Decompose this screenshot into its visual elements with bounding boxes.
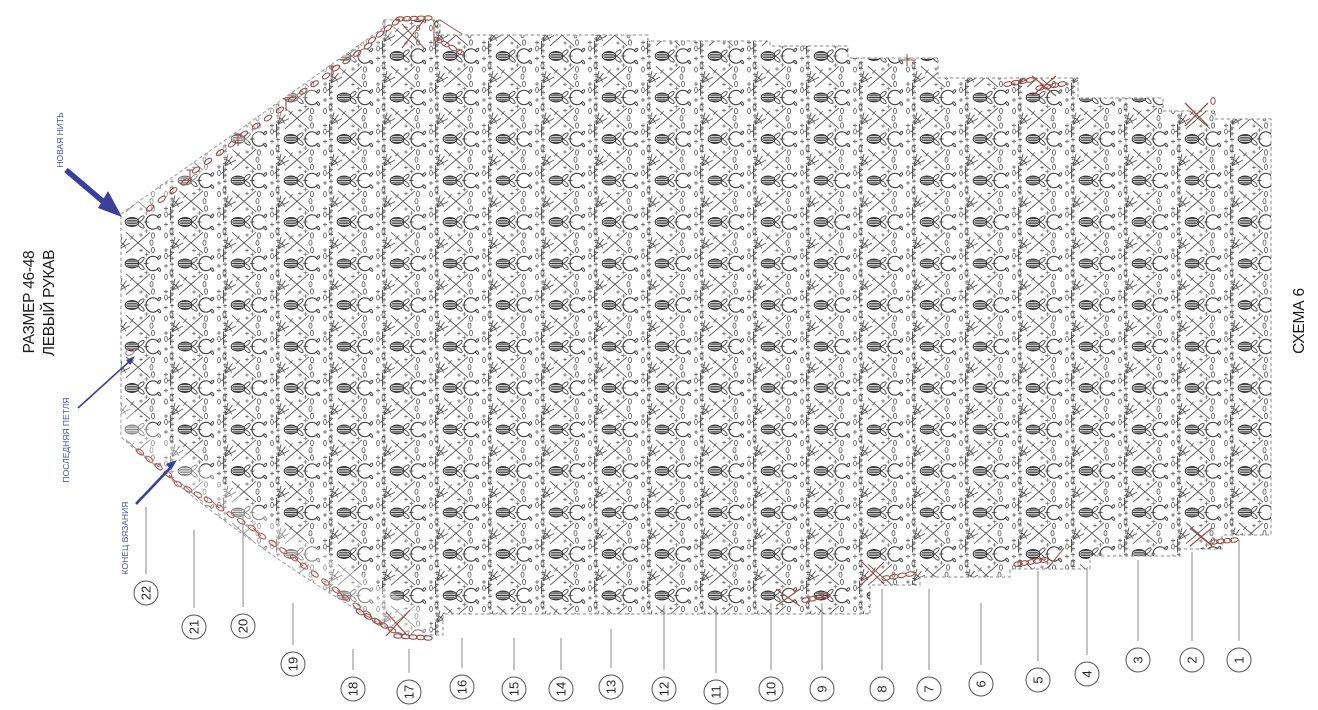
svg-text:2: 2 — [1185, 656, 1200, 663]
svg-text:7: 7 — [922, 685, 937, 692]
svg-text:8: 8 — [875, 685, 890, 692]
svg-text:4: 4 — [1080, 670, 1095, 677]
svg-text:20: 20 — [236, 619, 251, 633]
svg-text:1: 1 — [1232, 656, 1247, 663]
svg-text:ЛЕВЫЙ РУКАВ: ЛЕВЫЙ РУКАВ — [40, 250, 58, 356]
svg-text:11: 11 — [709, 685, 724, 699]
svg-text:3: 3 — [1131, 656, 1146, 663]
svg-text:9: 9 — [815, 685, 830, 692]
svg-text:14: 14 — [554, 682, 569, 696]
svg-text:СХЕМА 6: СХЕМА 6 — [1291, 288, 1308, 354]
svg-text:21: 21 — [187, 620, 202, 634]
svg-text:15: 15 — [507, 682, 522, 696]
svg-text:17: 17 — [402, 685, 417, 699]
svg-text:РАЗМЕР 46-48: РАЗМЕР 46-48 — [21, 251, 38, 354]
svg-text:18: 18 — [346, 682, 361, 696]
svg-text:13: 13 — [604, 680, 619, 694]
svg-text:22: 22 — [139, 586, 154, 600]
svg-text:КОНЕЦ ВЯЗАНИЯ: КОНЕЦ ВЯЗАНИЯ — [120, 502, 130, 575]
svg-text:5: 5 — [1031, 676, 1046, 683]
svg-text:12: 12 — [657, 682, 672, 696]
svg-text:19: 19 — [286, 657, 301, 671]
svg-text:НОВАЯ НИТЬ: НОВАЯ НИТЬ — [55, 112, 65, 168]
svg-text:ПОСЛЕДНЯЯ ПЕТЛЯ: ПОСЛЕДНЯЯ ПЕТЛЯ — [61, 398, 71, 483]
svg-text:10: 10 — [764, 682, 779, 696]
svg-text:6: 6 — [974, 680, 989, 687]
svg-text:16: 16 — [455, 680, 470, 694]
